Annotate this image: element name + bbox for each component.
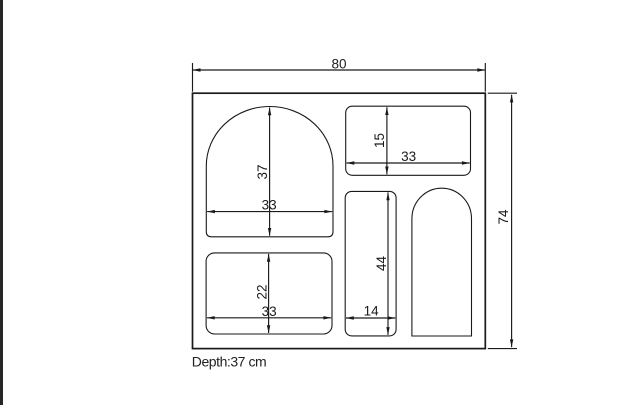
svg-text:14: 14 <box>364 304 380 319</box>
svg-text:Depth:37 cm: Depth:37 cm <box>192 354 266 370</box>
svg-text:44: 44 <box>374 256 389 272</box>
svg-text:74: 74 <box>496 209 511 225</box>
svg-text:33: 33 <box>401 149 416 164</box>
svg-text:33: 33 <box>262 304 277 319</box>
svg-text:80: 80 <box>331 56 346 71</box>
svg-text:33: 33 <box>262 197 277 212</box>
svg-text:15: 15 <box>372 133 387 148</box>
svg-text:37: 37 <box>255 164 270 179</box>
svg-text:22: 22 <box>255 284 270 299</box>
